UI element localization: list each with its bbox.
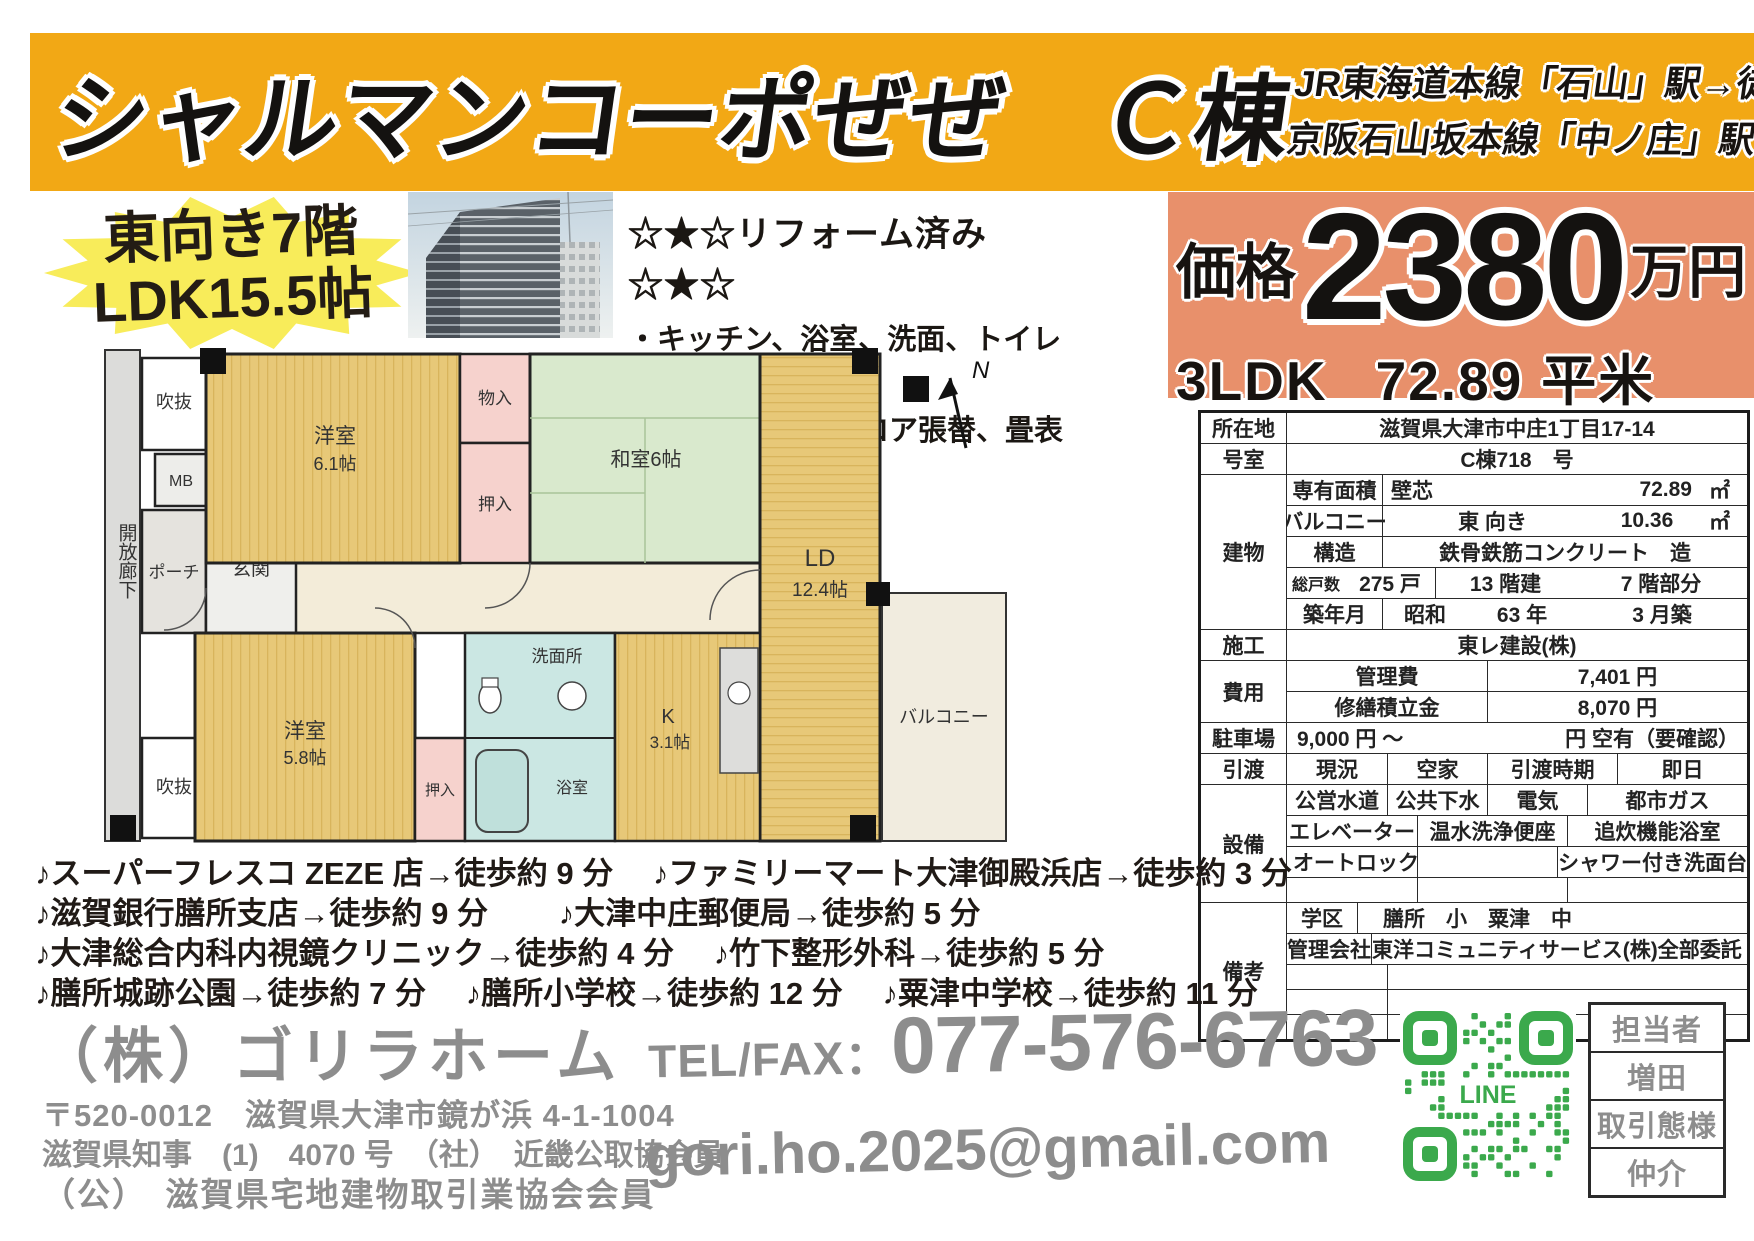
reform-title: ☆★☆リフォーム済み☆★☆ [628,206,1088,308]
table-row: 設備 公営水道 公共下水 電気 都市ガス [1200,785,1749,816]
closet-oshiire-bottom-label: 押入 [425,782,455,799]
price-label: 価格 [1176,224,1296,311]
staff-box: 担当者 増田 取引態様 仲介 [1588,1002,1726,1198]
station-access: JR東海道本線「石山」駅→徒歩19分 京阪石山坂本線「中ノ庄」駅→徒歩5分 [1283,56,1754,168]
access-line-2: 京阪石山坂本線「中ノ庄」駅→徒歩5分 [1283,112,1754,168]
table-row: 建物 専有面積 壁芯 72.89 ㎡ [1200,475,1749,506]
room-value: C棟718 号 [1287,444,1749,475]
facility-empty [1567,878,1747,902]
price-unit: 万円 [1630,225,1746,309]
email-address: gori.ho.2025@gmail.com [644,1109,1330,1190]
facility: エレベーター [1287,816,1417,846]
remarks-empty [1287,965,1387,989]
area-unit: 平米 [1541,350,1655,412]
balcony-dir: 東 向き [1382,506,1602,536]
current-value: 空家 [1387,754,1487,784]
mgmtco-label: 管理会社 [1287,934,1371,964]
facility-empty [1417,847,1557,877]
parking-note: 円 空有（要確認） [1497,723,1747,753]
facility: シャワー付き洗面台 [1557,847,1747,877]
amenities-list: ♪スーパーフレスコ ZEZE 店→徒歩約 9 分 ♪ファミリーマート大津御殿浜店… [35,858,1250,1018]
tel-fax-line: TEL/FAX： 077-576-6763 [647,992,1378,1097]
floorplan: 開放廊下 吹抜 MB ポーチ 吹抜 玄関 洋室 6.1帖 物入 押入 和室6帖 … [60,348,1010,848]
construction-label: 施工 [1200,630,1287,661]
company-association: （公） 滋賀県宅地建物取引業協会会員 [42,1168,656,1216]
property-title: シャルマンコーポぜぜ Ｃ棟 [20,44,1300,180]
remarks-empty [1387,965,1747,989]
construction-value: 東レ建設(株) [1287,630,1749,661]
washroom-label: 洗面所 [532,647,583,666]
property-table: 所在地 滋賀県大津市中庄1丁目17-14 号室 C棟718 号 建物 専有面積 … [1198,410,1750,1042]
facility: 温水洗浄便座 [1417,816,1567,846]
price-row: 価格 2380 万円 [1168,192,1754,342]
built-label: 築年月 [1287,599,1382,629]
balcony-label: バルコニー [899,707,989,727]
company-name: （株）ゴリラホーム [38,1008,621,1095]
senyuu-type: 壁芯 [1382,475,1477,505]
western1-label: 洋室 [314,425,356,448]
table-row: 駐車場 9,000 円 ～ 円 空有（要確認） [1200,723,1749,754]
table-row: 号室 C棟718 号 [1200,444,1749,475]
time-value: 即日 [1617,754,1747,784]
amenity-line: ♪スーパーフレスコ ZEZE 店→徒歩約 9 分 ♪ファミリーマート大津御殿浜店… [35,858,1250,889]
line-label: LINE [1460,1081,1517,1109]
facility: 追炊機能浴室 [1567,816,1747,846]
facility-empty [1287,878,1417,902]
balcony-label: バルコニー [1287,506,1382,536]
western2-size: 5.8帖 [283,748,326,768]
staff-name: 増田 [1591,1051,1723,1099]
time-label: 引渡時期 [1487,754,1617,784]
handover-label: 引渡 [1200,754,1287,785]
location-value: 滋賀県大津市中庄1丁目17-14 [1287,412,1749,444]
mgmtco-value: 東洋コミュニティサービス(株) [1371,934,1658,964]
mgmt-fee-label: 管理費 [1287,661,1487,691]
facility: オートロック [1287,847,1417,877]
north-label: N [972,357,990,384]
balcony-unit: ㎡ [1692,506,1747,536]
parking-value: 9,000 円 ～ [1287,723,1497,753]
units-value: 275 戸 [1345,568,1435,598]
structure-value: 鉄骨鉄筋コンクリート 造 [1382,537,1747,567]
kitchen-label: K [661,706,675,728]
ld-label: LD [805,545,836,572]
table-row: 費用 管理費 7,401 円 [1200,661,1749,692]
facility: 公共下水 [1387,785,1487,815]
table-row: 引渡 現況 空家 引渡時期 即日 [1200,754,1749,785]
senyuu-value: 72.89 [1477,475,1692,505]
western1-size: 6.1帖 [313,454,356,474]
access-line-1: JR東海道本線「石山」駅→徒歩19分 [1291,56,1754,112]
location-label: 所在地 [1200,412,1287,444]
facility: 公営水道 [1287,785,1387,815]
built-month: 3 月築 [1577,599,1747,629]
facility: 電気 [1487,785,1587,815]
building-label: 建物 [1200,475,1287,630]
room-label: 号室 [1200,444,1287,475]
floor-part: 7 階部分 [1575,568,1747,598]
cost-label: 費用 [1200,661,1287,723]
tatami-label: 和室6帖 [610,448,681,471]
highlight-text: 東向き7階 LDK15.5帖 [50,198,414,336]
ld-size: 12.4帖 [792,579,848,601]
void-top-label: 吹抜 [156,392,192,412]
porch-label: ポーチ [149,563,200,582]
built-era: 昭和 [1382,599,1467,629]
highlight-line-2: LDK15.5帖 [52,260,414,335]
table-row: 施工 東レ建設(株) [1200,630,1749,661]
amenity-line: ♪大津総合内科内視鏡クリニック→徒歩約 4 分 ♪竹下整形外科→徒歩約 5 分 [35,938,1250,969]
tel-label: TEL/FAX： [648,1021,892,1091]
mgmt-fee-value: 7,401 円 [1487,661,1747,691]
senyuu-unit: ㎡ [1692,475,1747,505]
current-label: 現況 [1287,754,1387,784]
corridor-label: 開放廊下 [116,523,138,599]
price-block: 価格 2380 万円 3LDK72.89平米 [1168,192,1754,398]
company-address: 〒520-0012 滋賀県大津市鏡が浜 4-1-1004 [42,1090,675,1135]
bath-label: 浴室 [556,779,588,797]
layout-area-row: 3LDK72.89平米 [1176,336,1754,416]
facility: 都市ガス [1587,785,1747,815]
deal-label: 取引態様 [1591,1099,1723,1147]
facility-empty [1417,878,1567,902]
mb-label: MB [169,473,193,490]
repair-label: 修繕積立金 [1287,692,1487,722]
parking-label: 駐車場 [1200,723,1287,754]
mgmtco-note: 全部委託 [1658,934,1747,964]
layout-value: 3LDK [1176,350,1328,412]
school-label: 学区 [1287,903,1357,933]
price-amount: 2380 [1302,191,1624,343]
line-qr-code: LINE [1400,1008,1576,1184]
western2-label: 洋室 [284,720,326,743]
senyuu-label: 専有面積 [1287,475,1382,505]
amenity-line: ♪滋賀銀行膳所支店→徒歩約 9 分 ♪大津中庄郵便局→徒歩約 5 分 [35,898,1250,929]
flyer-page: シャルマンコーポぜぜ Ｃ棟 JR東海道本線「石山」駅→徒歩19分 京阪石山坂本線… [0,0,1754,1241]
void-bottom-label: 吹抜 [156,777,192,797]
deal-type: 仲介 [1591,1147,1723,1195]
floors-value: 13 階建 [1435,568,1575,598]
balcony-value: 10.36 [1602,506,1692,536]
repair-value: 8,070 円 [1487,692,1747,722]
kitchen-size: 3.1帖 [650,733,691,752]
table-row: 所在地 滋賀県大津市中庄1丁目17-14 [1200,412,1749,444]
structure-label: 構造 [1287,537,1382,567]
closet-monoire-label: 物入 [478,389,512,408]
built-year: 63 年 [1467,599,1577,629]
title-banner: シャルマンコーポぜぜ Ｃ棟 JR東海道本線「石山」駅→徒歩19分 京阪石山坂本線… [30,33,1754,191]
staff-label: 担当者 [1591,1005,1723,1051]
highlight-badge: 東向き7階 LDK15.5帖 [42,194,422,352]
area-value: 72.89 [1376,350,1524,412]
table-row: 備考 学区 膳所 小 粟津 中 [1200,903,1749,934]
tel-number: 077-576-6763 [890,992,1378,1092]
building-photo [408,192,613,338]
school-value: 膳所 小 粟津 中 [1357,903,1747,933]
units-label: 総戸数 [1287,568,1345,598]
north-arrow: N [938,357,990,448]
closet-oshiire-top-label: 押入 [478,495,512,514]
